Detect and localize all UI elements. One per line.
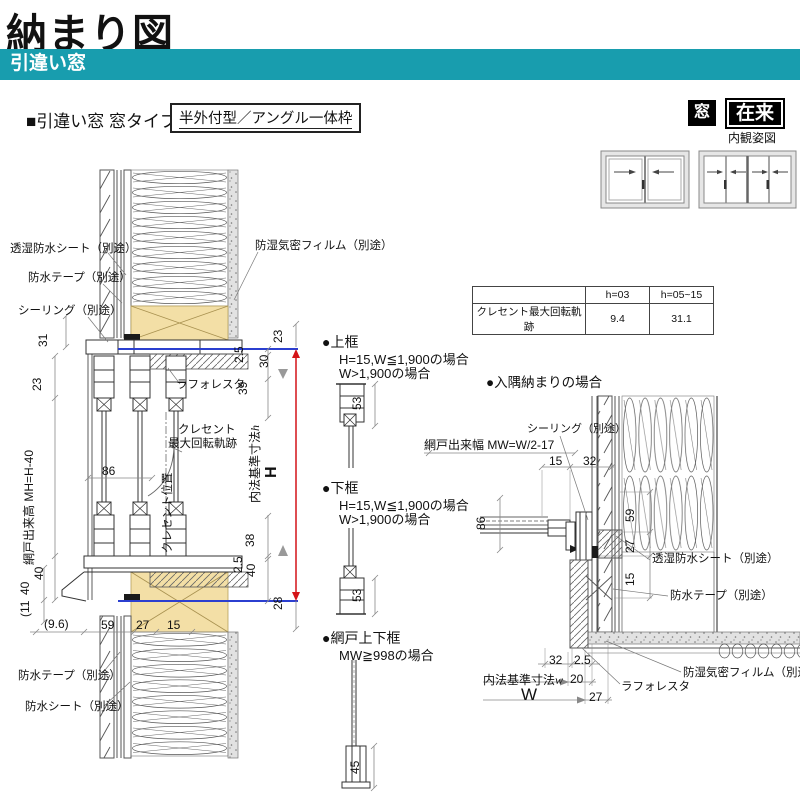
- dim-corner-20: 20: [570, 672, 583, 686]
- label-moisture-sheet-top: 透湿防水シート（別途）: [10, 243, 137, 256]
- dim-bottom-40: 40: [244, 564, 258, 577]
- dim-top-39: 39: [236, 382, 250, 395]
- dim-31: 31: [36, 334, 50, 347]
- dim-corner-bottom-27: 27: [589, 690, 602, 704]
- dim-bottom-38: 38: [243, 534, 257, 547]
- dim-corner-15: 15: [623, 573, 637, 586]
- dim-corner-bottom-32: 32: [549, 653, 562, 667]
- dim-screen-23: 23: [30, 378, 44, 391]
- top-rail-detail: [336, 381, 378, 468]
- label-height-mark: H: [264, 466, 280, 478]
- label-width-mark: W: [521, 685, 537, 705]
- wood-lintel: [131, 306, 228, 340]
- dim-bottom-rail-53: 53: [350, 589, 364, 602]
- dim-corner-59: 59: [623, 509, 637, 522]
- dim-top-23: 23: [271, 330, 285, 343]
- label-waterproof-sheet-bottom: 防水シート（別途）: [25, 701, 129, 714]
- label-waterproof-tape-bottom: 防水テープ（別途）: [18, 670, 121, 683]
- label-corner-sheet: 透湿防水シート（別途）: [652, 553, 779, 566]
- dim-screen-40: 40: [32, 567, 46, 580]
- dim-top-30: 30: [257, 355, 271, 368]
- dim-foot-27: 27: [136, 618, 149, 632]
- cond-top-rail-2: W>1,900の場合: [339, 363, 430, 382]
- label-screen-width: 網戸出来幅 MW=W/2-17: [424, 438, 554, 452]
- dim-top-rail-53: 53: [350, 397, 364, 410]
- dim-corner-top-32: 32: [583, 454, 596, 468]
- cond-screen-rail: MW≧998の場合: [339, 645, 434, 664]
- label-corner-laforesta: ラフォレスタ: [621, 681, 690, 694]
- label-corner-film: 防湿気密フィルム（別途）: [683, 667, 800, 680]
- dim-center-86: 86: [102, 464, 115, 478]
- dim-corner-86: 86: [474, 517, 488, 530]
- catalog-page: 納まり図 引違い窓 ■引違い窓 窓タイプ 半外付型／アングル一体枠 窓 在来 内…: [0, 0, 800, 800]
- main-section-lower-wall: [100, 616, 238, 758]
- label-corner-tape: 防水テープ（別途）: [670, 590, 773, 603]
- inner-view-diagrams: [601, 151, 796, 208]
- label-waterproof-tape-top: 防水テープ（別途）: [28, 272, 131, 285]
- dim-foot-15: 15: [167, 618, 180, 632]
- bottom-rail-detail: [336, 528, 378, 617]
- cond-bottom-rail-2: W>1,900の場合: [339, 509, 430, 528]
- label-inner-dim-h: 内法基準寸法h: [248, 425, 262, 503]
- corner-bottom-wall: [588, 632, 800, 659]
- dim-top-2-5: 2.5: [232, 346, 246, 363]
- height-dimension-arrow: [292, 349, 300, 601]
- dim-bottom-28: 28: [271, 597, 285, 610]
- dim-sill-11: (11: [18, 601, 32, 617]
- label-sealing: シーリング（別途）: [18, 305, 122, 318]
- label-screen-height: 網戸出来高 MH=H-40: [22, 450, 36, 565]
- dim-corner-bottom-2-5: 2.5: [574, 653, 591, 667]
- label-corner-sealing: シーリング（別途）: [527, 423, 626, 436]
- dim-foot-9-6: (9.6): [44, 617, 69, 631]
- label-laforesta-main: ラフォレスタ: [176, 379, 245, 392]
- label-crescent-line1: クレセント: [178, 424, 236, 437]
- dim-corner-top-15: 15: [549, 454, 562, 468]
- title-corner-section: ●入隅納まりの場合: [486, 371, 602, 391]
- dim-corner-27: 27: [623, 540, 637, 553]
- label-vapor-film-top: 防湿気密フィルム（別途）: [255, 240, 393, 253]
- dim-bottom-2-5: 2.5: [231, 556, 245, 573]
- sill-frame: [62, 556, 248, 632]
- dim-screen-rail-45: 45: [348, 761, 362, 774]
- label-crescent-position: クレセント位置: [162, 473, 176, 554]
- label-crescent-line2: 最大回転軌跡: [168, 438, 237, 451]
- dim-foot-59: 59: [101, 618, 114, 632]
- dim-sill-40: 40: [18, 582, 32, 595]
